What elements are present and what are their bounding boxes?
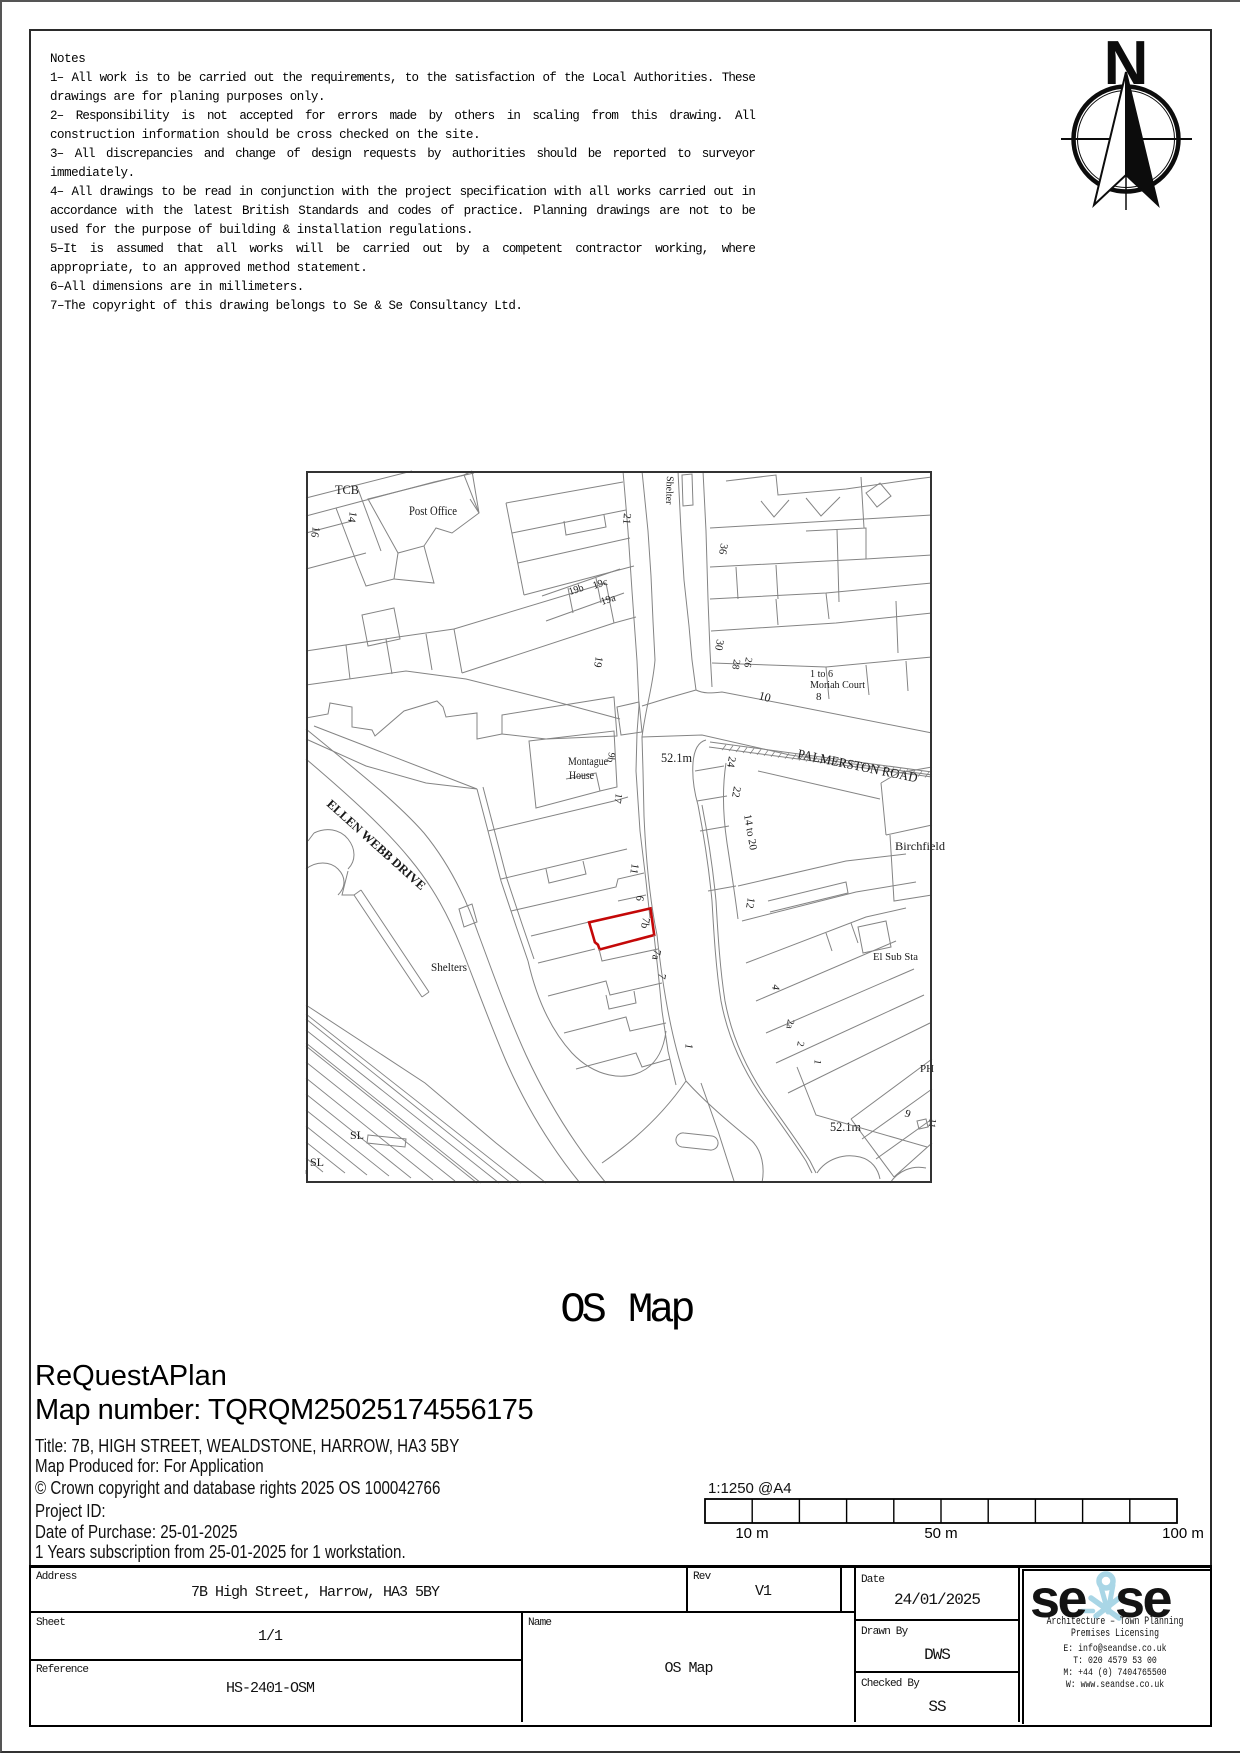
svg-text:50 m: 50 m bbox=[924, 1525, 957, 1542]
svg-text:SL: SL bbox=[350, 1128, 364, 1142]
svg-text:17: 17 bbox=[611, 792, 624, 804]
svg-text:52.1m: 52.1m bbox=[661, 750, 692, 765]
svg-text:Shelters: Shelters bbox=[431, 960, 467, 974]
svg-text:SL: SL bbox=[310, 1155, 324, 1169]
svg-text:7a: 7a bbox=[649, 948, 663, 960]
svg-text:12: 12 bbox=[743, 896, 757, 909]
svg-text:26: 26 bbox=[741, 656, 754, 668]
svg-text:11: 11 bbox=[627, 862, 641, 875]
svg-text:Shelter: Shelter bbox=[663, 476, 675, 505]
svg-text:Birchfield: Birchfield bbox=[895, 839, 945, 853]
svg-text:Moriah Court: Moriah Court bbox=[810, 679, 865, 691]
svg-text:House: House bbox=[569, 770, 594, 782]
svg-text:28: 28 bbox=[729, 658, 742, 670]
svg-text:8: 8 bbox=[816, 691, 822, 703]
svg-text:El Sub Sta: El Sub Sta bbox=[873, 951, 918, 963]
svg-text:Post Office: Post Office bbox=[409, 503, 457, 518]
svg-text:Montague: Montague bbox=[568, 756, 608, 768]
svg-text:22: 22 bbox=[729, 785, 743, 798]
svg-text:10 m: 10 m bbox=[735, 1525, 768, 1542]
svg-text:TCB: TCB bbox=[335, 483, 359, 497]
svg-text:21: 21 bbox=[620, 513, 633, 525]
svg-text:100 m: 100 m bbox=[1162, 1525, 1204, 1542]
